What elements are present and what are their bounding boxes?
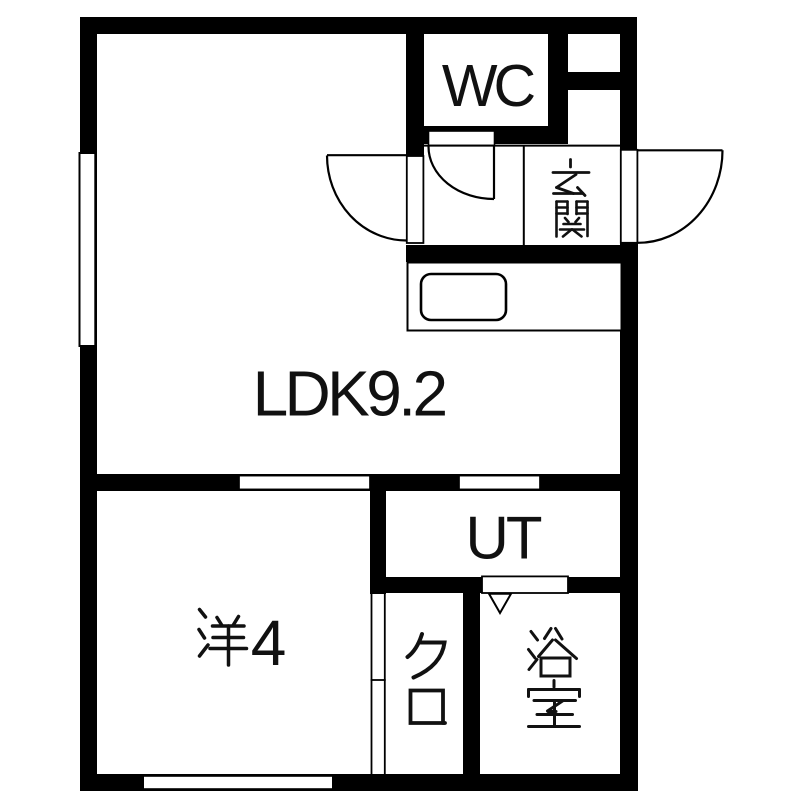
svg-text:4: 4 (251, 607, 287, 679)
svg-text:WC: WC (442, 53, 535, 119)
svg-text:LDK9.2: LDK9.2 (253, 358, 446, 430)
svg-text:UT: UT (466, 505, 542, 572)
